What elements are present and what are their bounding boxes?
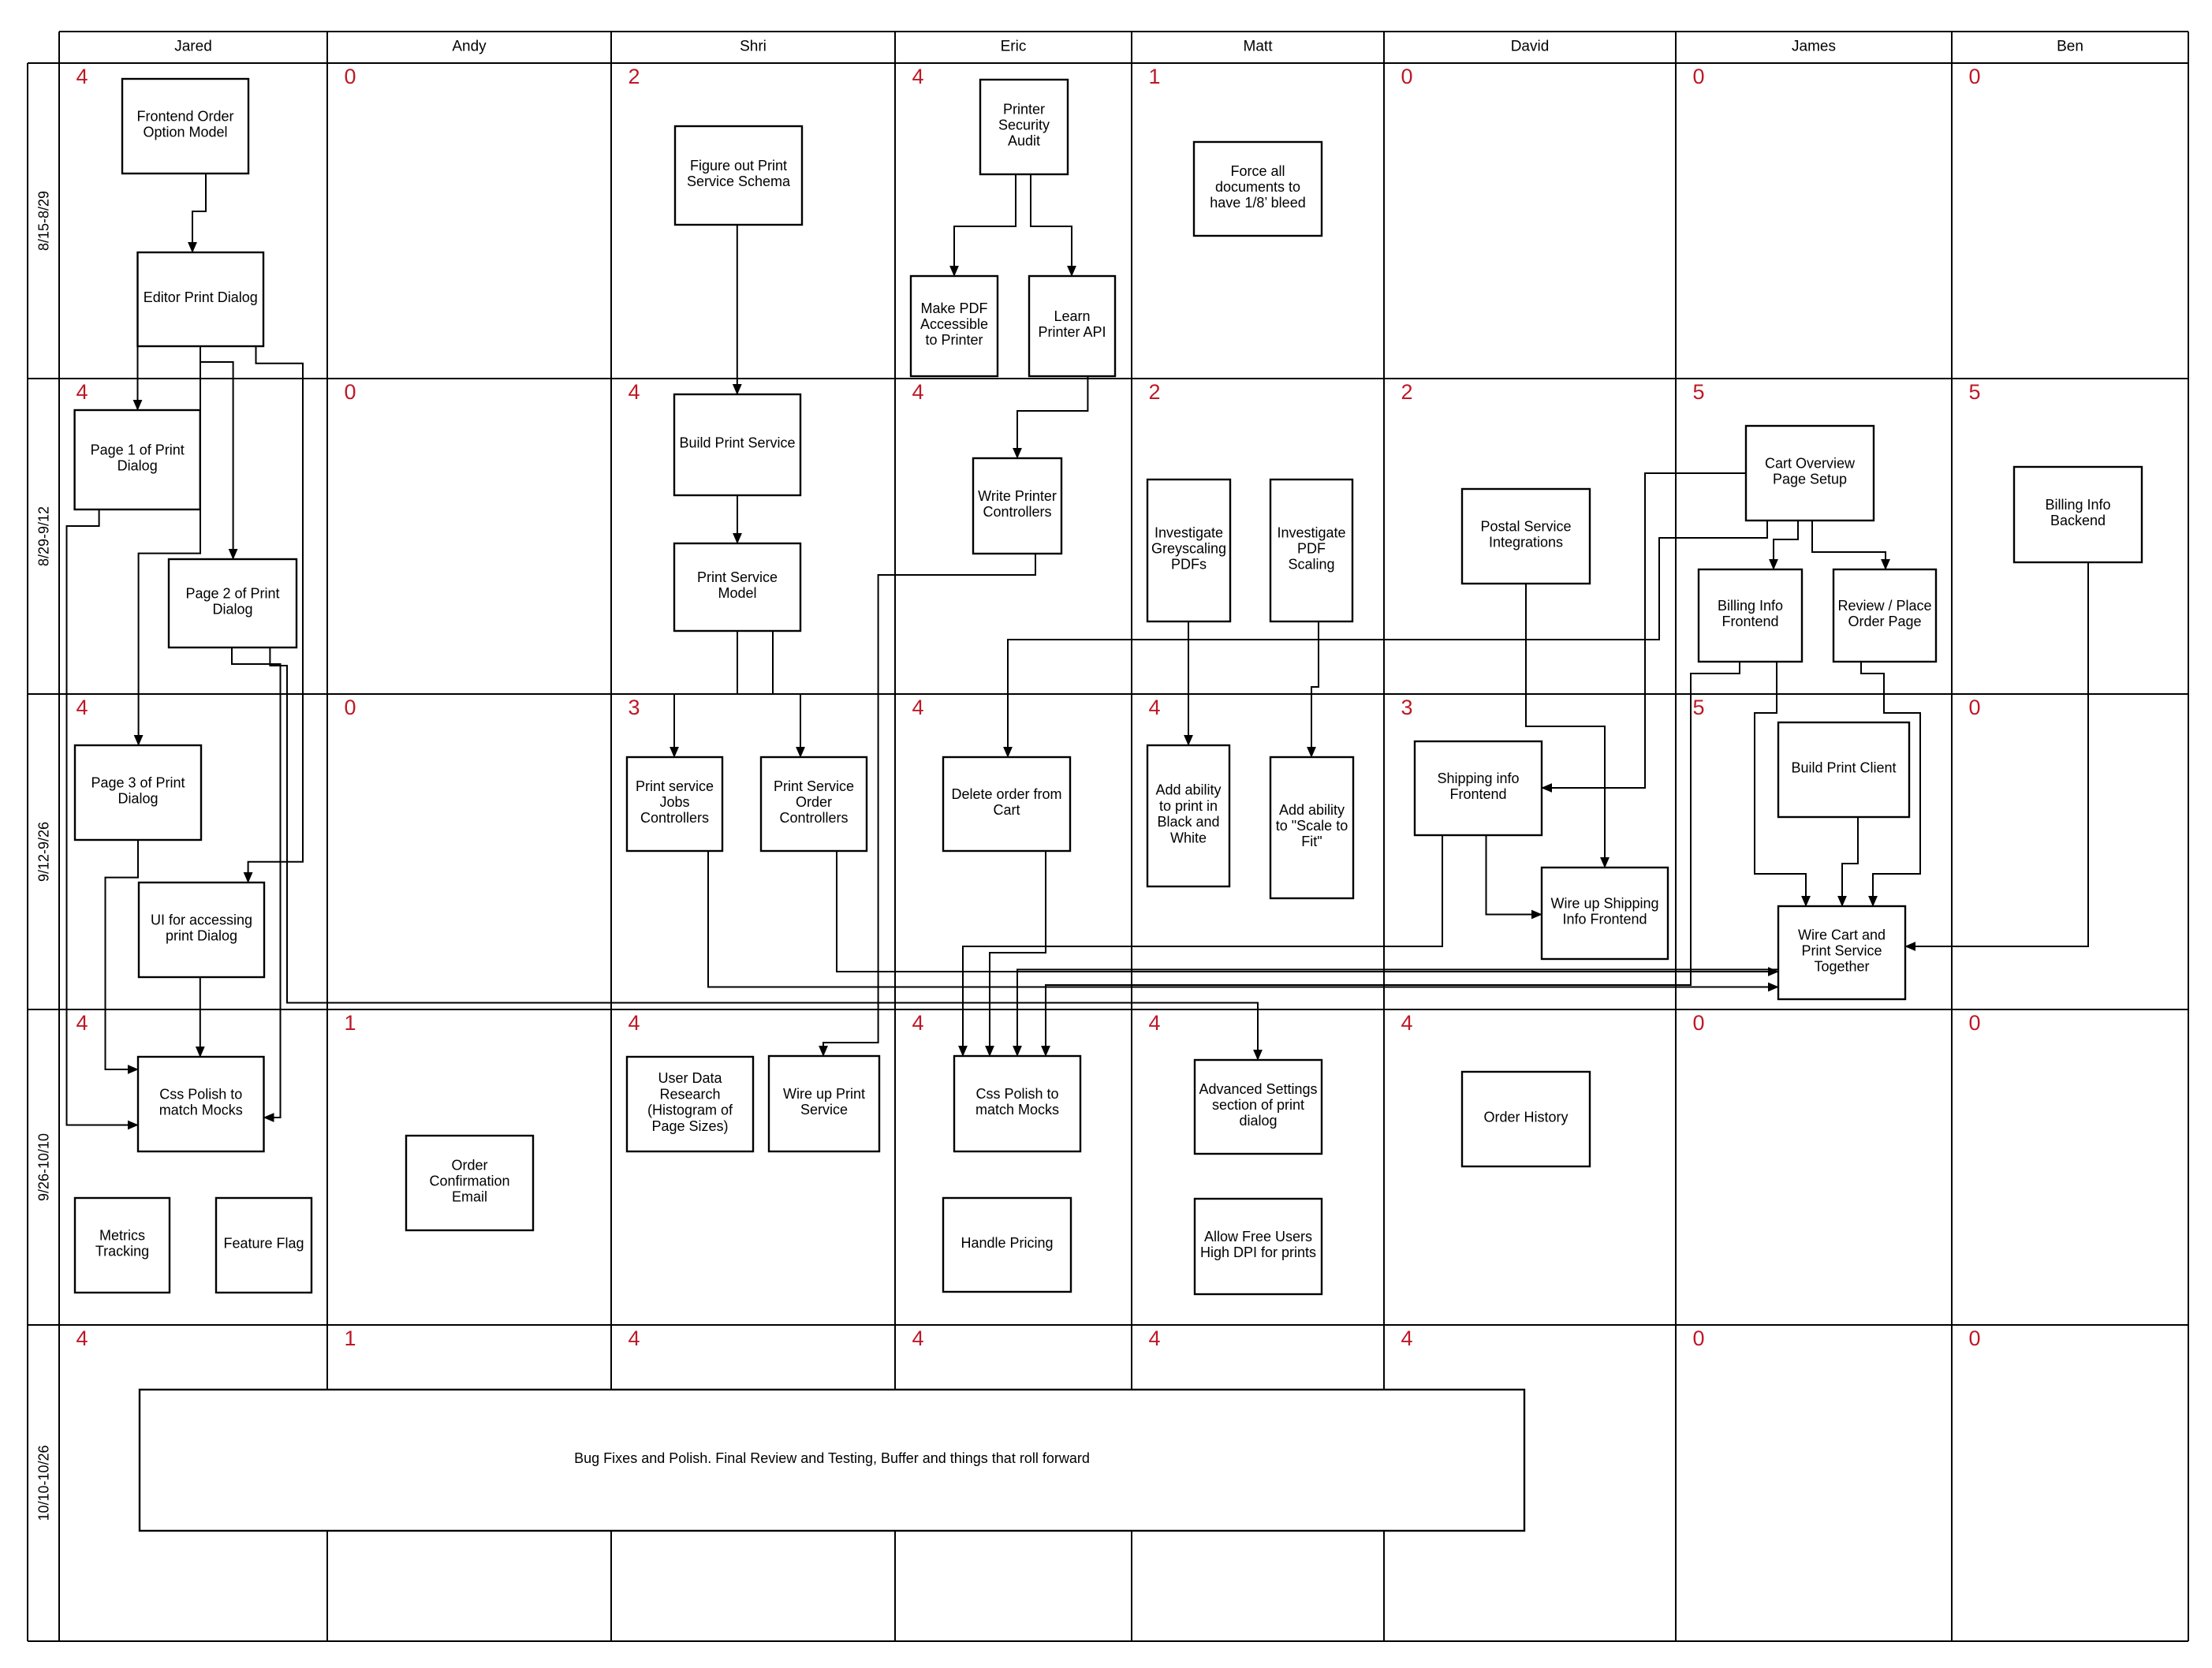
svg-text:4: 4 [76, 65, 88, 88]
svg-text:Shri: Shri [740, 39, 767, 55]
svg-text:Andy: Andy [452, 39, 487, 55]
svg-text:2: 2 [1401, 380, 1412, 404]
svg-text:5: 5 [1692, 696, 1704, 719]
svg-text:0: 0 [1401, 65, 1412, 88]
svg-text:Jared: Jared [174, 39, 212, 55]
svg-text:User DataResearch(Histogram of: User DataResearch(Histogram ofPage Sizes… [647, 1070, 733, 1134]
svg-text:Write PrinterControllers: Write PrinterControllers [978, 488, 1057, 520]
svg-text:Editor Print Dialog: Editor Print Dialog [144, 289, 258, 305]
svg-text:Frontend OrderOption Model: Frontend OrderOption Model [136, 108, 233, 140]
svg-text:Billing InfoFrontend: Billing InfoFrontend [1718, 598, 1783, 629]
svg-text:4: 4 [912, 65, 923, 88]
svg-text:4: 4 [1401, 1327, 1412, 1350]
svg-text:9/12-9/26: 9/12-9/26 [35, 822, 51, 882]
svg-text:0: 0 [1968, 65, 1980, 88]
svg-text:Matt: Matt [1244, 39, 1274, 55]
svg-text:Css Polish tomatch Mocks: Css Polish tomatch Mocks [159, 1086, 243, 1118]
svg-text:Css Polish tomatch Mocks: Css Polish tomatch Mocks [975, 1086, 1059, 1118]
svg-text:James: James [1792, 39, 1836, 55]
svg-text:MetricsTracking: MetricsTracking [95, 1227, 149, 1259]
svg-text:0: 0 [344, 65, 356, 88]
svg-text:0: 0 [1968, 1011, 1980, 1035]
svg-text:Figure out PrintService Schema: Figure out PrintService Schema [687, 158, 791, 189]
svg-text:Order History: Order History [1483, 1110, 1568, 1125]
svg-text:Ben: Ben [2057, 39, 2083, 55]
svg-text:Build Print Client: Build Print Client [1791, 760, 1896, 776]
svg-text:3: 3 [628, 696, 640, 719]
svg-text:0: 0 [1692, 65, 1704, 88]
svg-text:8/15-8/29: 8/15-8/29 [35, 191, 51, 251]
svg-text:0: 0 [344, 696, 356, 719]
svg-text:Handle Pricing: Handle Pricing [961, 1235, 1053, 1251]
svg-text:9/26-10/10: 9/26-10/10 [35, 1133, 51, 1201]
svg-text:4: 4 [1148, 1011, 1160, 1035]
svg-text:4: 4 [1148, 1327, 1160, 1350]
svg-text:4: 4 [912, 696, 923, 719]
svg-text:Make PDFAccessibleto Printer: Make PDFAccessibleto Printer [920, 300, 988, 348]
svg-text:5: 5 [1692, 380, 1704, 404]
svg-text:Wire up ShippingInfo Frontend: Wire up ShippingInfo Frontend [1550, 895, 1658, 927]
svg-text:Feature Flag: Feature Flag [223, 1236, 304, 1252]
svg-text:5: 5 [1968, 380, 1980, 404]
svg-text:0: 0 [1968, 1327, 1980, 1350]
svg-text:Bug Fixes and Polish. Final Re: Bug Fixes and Polish. Final Review and T… [574, 1450, 1090, 1466]
svg-text:David: David [1511, 39, 1550, 55]
svg-text:4: 4 [1148, 696, 1160, 719]
svg-text:4: 4 [76, 1011, 88, 1035]
svg-text:2: 2 [1148, 380, 1160, 404]
svg-text:Eric: Eric [1001, 39, 1027, 55]
svg-text:4: 4 [628, 1011, 640, 1035]
svg-text:Build Print Service: Build Print Service [679, 435, 795, 451]
svg-text:10/10-10/26: 10/10-10/26 [35, 1445, 51, 1521]
svg-text:4: 4 [628, 380, 640, 404]
svg-text:0: 0 [1692, 1011, 1704, 1035]
svg-text:4: 4 [628, 1327, 640, 1350]
svg-text:Review / PlaceOrder Page: Review / PlaceOrder Page [1837, 598, 1931, 629]
svg-text:4: 4 [76, 380, 88, 404]
svg-text:1: 1 [344, 1327, 356, 1350]
svg-text:Allow Free UsersHigh DPI for p: Allow Free UsersHigh DPI for prints [1200, 1229, 1316, 1260]
svg-text:3: 3 [1401, 696, 1412, 719]
svg-text:4: 4 [912, 1011, 923, 1035]
svg-text:1: 1 [1148, 65, 1160, 88]
svg-text:Billing InfoBackend: Billing InfoBackend [2045, 497, 2110, 528]
svg-text:1: 1 [344, 1011, 356, 1035]
svg-text:Cart OverviewPage Setup: Cart OverviewPage Setup [1765, 455, 1856, 487]
svg-text:0: 0 [1968, 696, 1980, 719]
svg-text:0: 0 [344, 380, 356, 404]
svg-text:4: 4 [76, 696, 88, 719]
svg-text:8/29-9/12: 8/29-9/12 [35, 506, 51, 566]
svg-text:UI for accessingprint Dialog: UI for accessingprint Dialog [151, 912, 252, 943]
svg-text:4: 4 [912, 380, 923, 404]
svg-text:Postal ServiceIntegrations: Postal ServiceIntegrations [1480, 518, 1571, 550]
svg-text:0: 0 [1692, 1327, 1704, 1350]
svg-text:4: 4 [76, 1327, 88, 1350]
svg-text:4: 4 [912, 1327, 923, 1350]
svg-text:4: 4 [1401, 1011, 1412, 1035]
svg-text:2: 2 [628, 65, 640, 88]
